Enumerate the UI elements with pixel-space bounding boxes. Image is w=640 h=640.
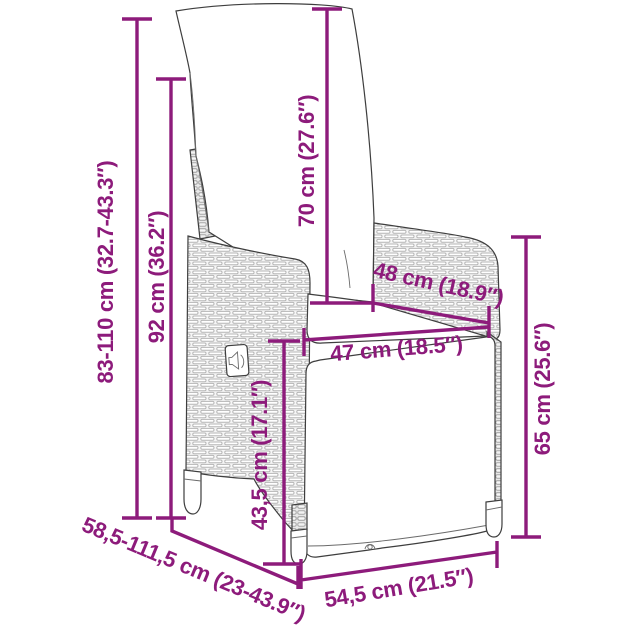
diagram-canvas: 83-110 cm (32.7-43.3″) 92 cm (36.2″) 70 … <box>0 0 640 640</box>
dimension-depth-range: 58,5-111,5 cm (23-43.9″) <box>78 512 309 627</box>
recline-latch <box>225 344 249 376</box>
dim-label-seat-height: 43,5 cm (17.1″) <box>247 380 272 530</box>
dimension-overall-height: 92 cm (36.2″) <box>144 79 186 518</box>
product-dimension-diagram: 83-110 cm (32.7-43.3″) 92 cm (36.2″) 70 … <box>0 0 640 640</box>
dim-label-overall-height: 92 cm (36.2″) <box>144 211 169 344</box>
dim-label-height-range: 83-110 cm (32.7-43.3″) <box>93 161 118 384</box>
dim-label-front-width: 54,5 cm (21.5″) <box>323 563 475 612</box>
front-right-leg <box>486 500 502 537</box>
dim-label-side-height: 65 cm (25.6″) <box>530 323 555 456</box>
dimension-side-height: 65 cm (25.6″) <box>511 237 555 537</box>
front-left-leg <box>291 503 307 564</box>
front-panel <box>304 337 495 557</box>
dim-label-depth-range: 58,5-111,5 cm (23-43.9″) <box>78 512 309 627</box>
rear-left-leg <box>184 470 201 514</box>
dim-label-backrest-height: 70 cm (27.6″) <box>294 95 319 228</box>
